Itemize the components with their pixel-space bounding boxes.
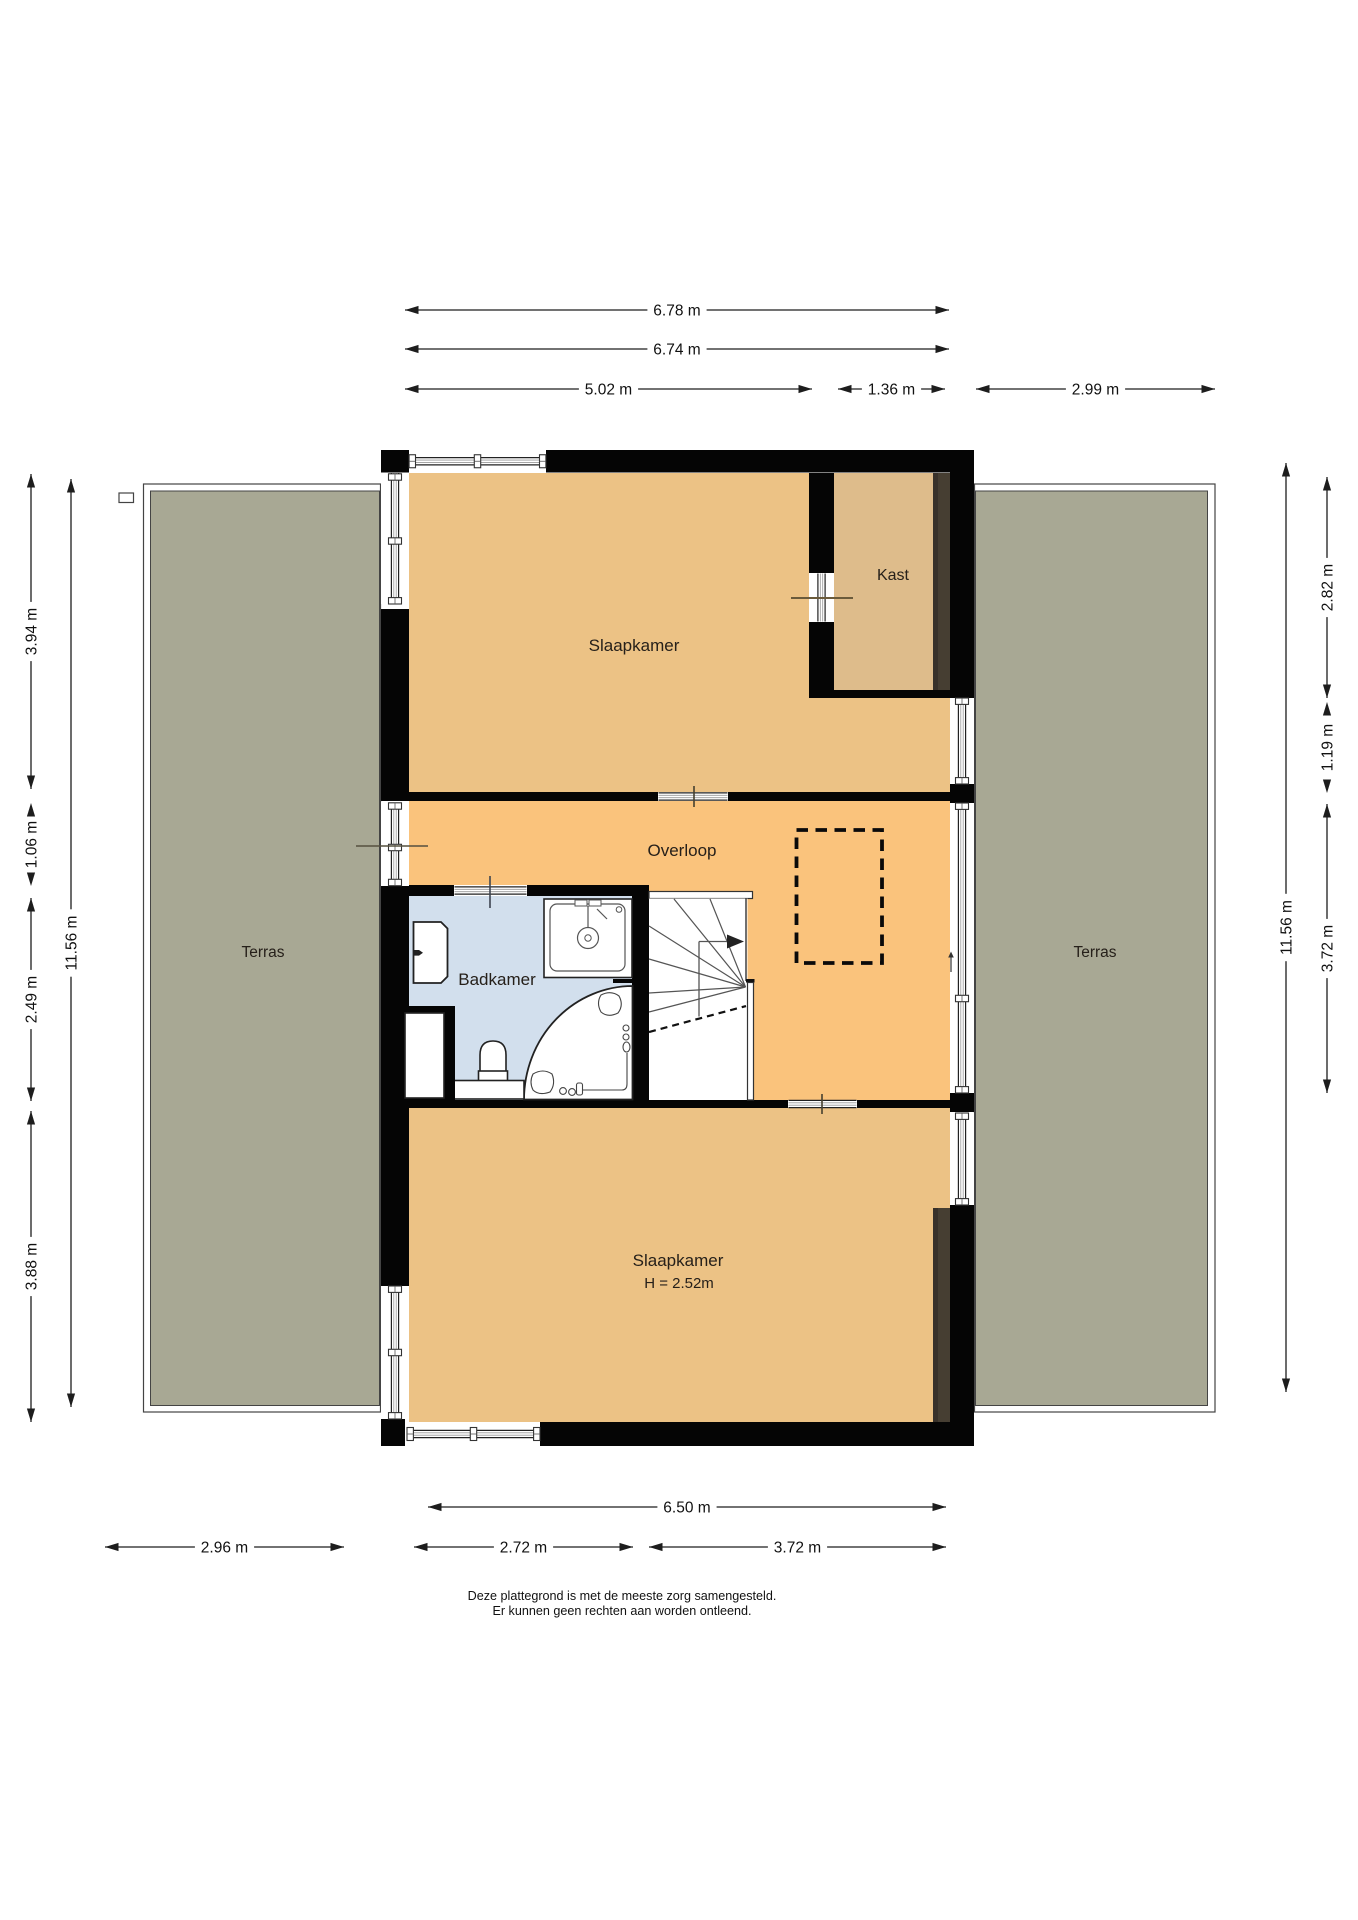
svg-text:5.02 m: 5.02 m bbox=[585, 382, 632, 399]
svg-text:11.56 m: 11.56 m bbox=[1279, 900, 1296, 955]
svg-text:11.56 m: 11.56 m bbox=[64, 916, 81, 971]
svg-text:1.36 m: 1.36 m bbox=[868, 382, 915, 399]
svg-text:H = 2.52m: H = 2.52m bbox=[644, 1275, 714, 1292]
svg-text:Terras: Terras bbox=[241, 944, 284, 961]
svg-text:2.82 m: 2.82 m bbox=[1320, 564, 1337, 611]
svg-text:1.19 m: 1.19 m bbox=[1320, 724, 1337, 771]
svg-text:Kast: Kast bbox=[877, 567, 910, 584]
svg-text:3.94 m: 3.94 m bbox=[24, 608, 41, 655]
svg-text:Slaapkamer: Slaapkamer bbox=[589, 636, 680, 655]
svg-text:Er kunnen geen rechten aan wor: Er kunnen geen rechten aan worden ontlee… bbox=[492, 1604, 751, 1618]
svg-text:6.74 m: 6.74 m bbox=[653, 342, 700, 359]
svg-text:3.72 m: 3.72 m bbox=[774, 1540, 821, 1557]
svg-text:6.78 m: 6.78 m bbox=[653, 303, 700, 320]
svg-text:Slaapkamer: Slaapkamer bbox=[633, 1251, 724, 1270]
svg-text:3.72 m: 3.72 m bbox=[1320, 925, 1337, 972]
svg-text:Badkamer: Badkamer bbox=[458, 970, 536, 989]
svg-text:2.99 m: 2.99 m bbox=[1072, 382, 1119, 399]
svg-text:Terras: Terras bbox=[1073, 944, 1116, 961]
svg-text:2.96 m: 2.96 m bbox=[201, 1540, 248, 1557]
svg-text:Deze plattegrond is met de mee: Deze plattegrond is met de meeste zorg s… bbox=[468, 1589, 777, 1603]
svg-text:2.49 m: 2.49 m bbox=[24, 976, 41, 1023]
svg-text:3.88 m: 3.88 m bbox=[24, 1243, 41, 1290]
svg-text:2.72 m: 2.72 m bbox=[500, 1540, 547, 1557]
svg-text:Overloop: Overloop bbox=[648, 841, 717, 860]
svg-text:1.06 m: 1.06 m bbox=[24, 821, 41, 868]
svg-text:6.50 m: 6.50 m bbox=[663, 1500, 710, 1517]
